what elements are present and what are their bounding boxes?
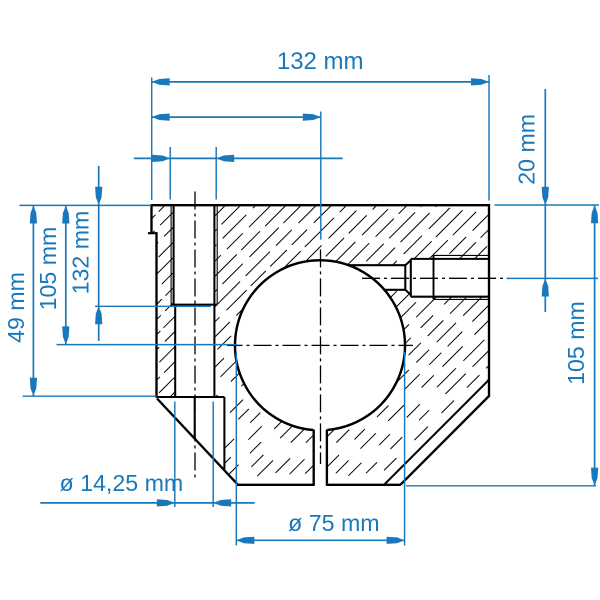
svg-text:132 mm: 132 mm	[68, 211, 94, 295]
svg-text:132 mm: 132 mm	[277, 48, 364, 75]
svg-text:ø 14,25 mm: ø 14,25 mm	[60, 470, 184, 496]
svg-text:ø 75 mm: ø 75 mm	[288, 510, 379, 536]
svg-text:49 mm: 49 mm	[3, 272, 29, 343]
svg-text:20 mm: 20 mm	[514, 114, 540, 185]
svg-text:105 mm: 105 mm	[563, 301, 589, 385]
svg-text:105 mm: 105 mm	[35, 227, 61, 311]
